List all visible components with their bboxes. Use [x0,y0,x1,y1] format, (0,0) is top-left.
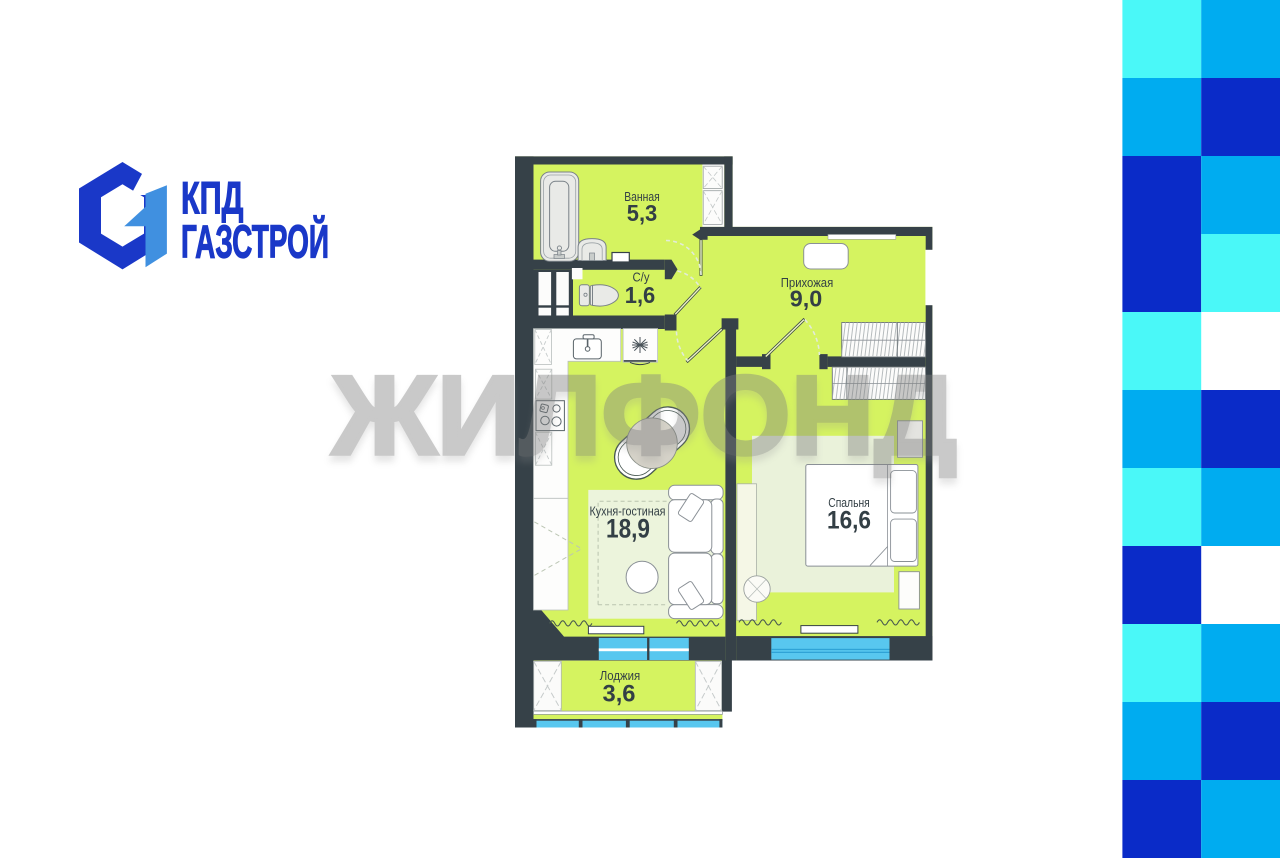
svg-text:ГАЗСТРОЙ: ГАЗСТРОЙ [181,215,329,267]
svg-text:1,6: 1,6 [625,282,656,308]
svg-text:3,6: 3,6 [603,681,636,708]
svg-text:16,6: 16,6 [827,507,871,535]
svg-text:ЖИЛФОНД: ЖИЛФОНД [331,353,957,478]
svg-text:5,3: 5,3 [627,200,658,226]
svg-text:9,0: 9,0 [790,286,823,312]
svg-text:18,9: 18,9 [606,514,650,544]
